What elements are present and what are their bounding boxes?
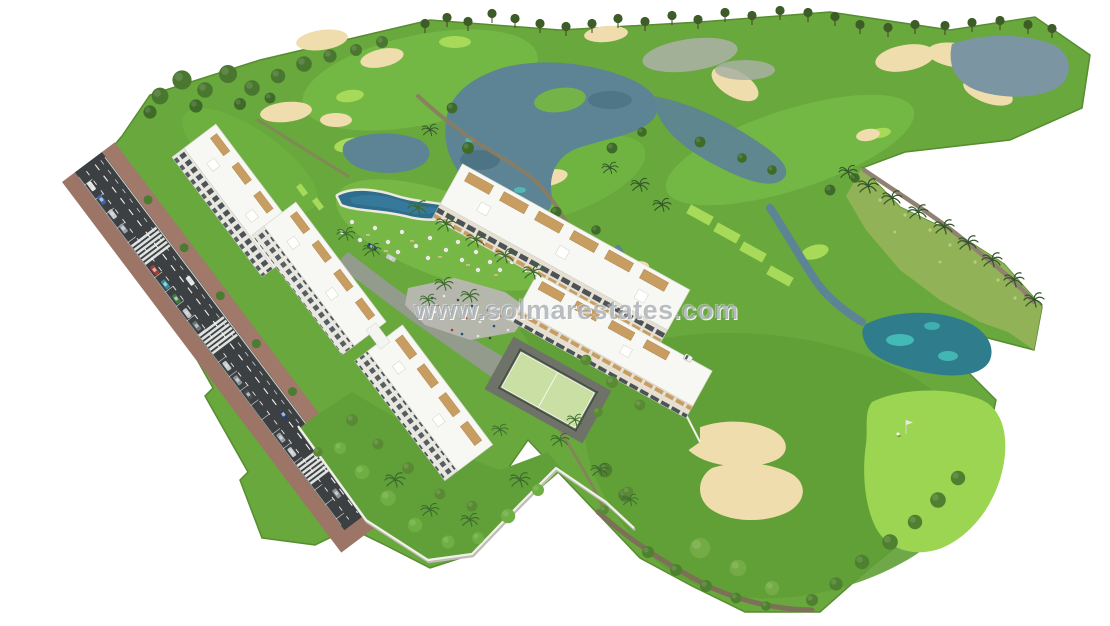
render-canvas [0,0,1110,626]
aerial-site-render: www.solmarestates.com [0,0,1110,626]
